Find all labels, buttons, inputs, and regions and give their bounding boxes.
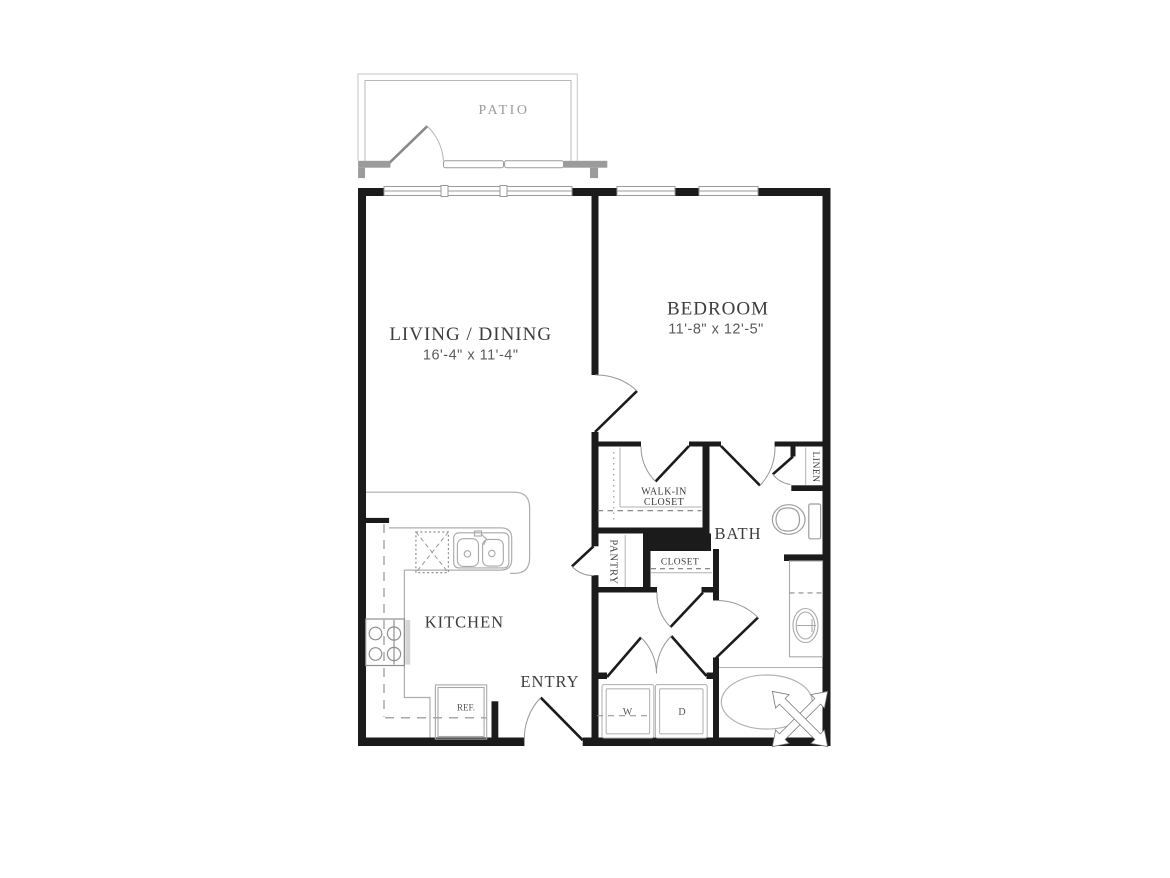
svg-text:WALK-IN: WALK-IN: [641, 487, 687, 498]
svg-text:LINEN: LINEN: [810, 452, 820, 483]
svg-text:KITCHEN: KITCHEN: [425, 613, 504, 632]
svg-text:W: W: [623, 707, 633, 718]
svg-text:REF.: REF.: [457, 703, 475, 713]
svg-text:16'-4" x 11'-4": 16'-4" x 11'-4": [423, 348, 519, 364]
svg-text:D: D: [678, 707, 685, 718]
svg-text:11'-8" x 12'-5": 11'-8" x 12'-5": [668, 322, 764, 338]
svg-text:CLOSET: CLOSET: [661, 558, 699, 568]
svg-text:PATIO: PATIO: [479, 103, 530, 118]
svg-text:CLOSET: CLOSET: [644, 497, 684, 508]
svg-text:LIVING / DINING: LIVING / DINING: [389, 324, 552, 345]
svg-text:PANTRY: PANTRY: [608, 539, 619, 584]
svg-text:BATH: BATH: [714, 524, 761, 543]
svg-text:ENTRY: ENTRY: [520, 672, 579, 691]
svg-text:BEDROOM: BEDROOM: [667, 299, 769, 320]
